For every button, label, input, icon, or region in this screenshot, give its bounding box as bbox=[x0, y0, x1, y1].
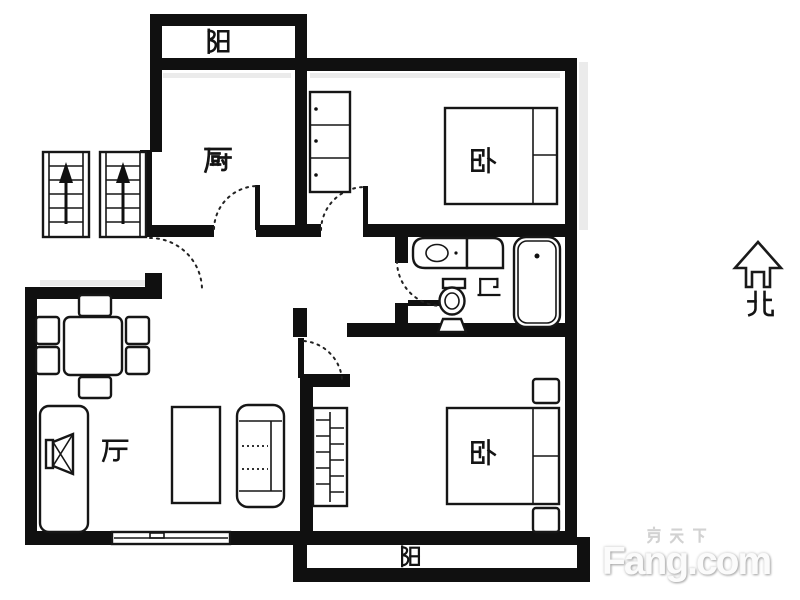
wall-balcony-top bbox=[150, 14, 307, 26]
kitchen-door-leaf bbox=[255, 185, 260, 230]
bedroom1-door-swing-icon bbox=[321, 187, 364, 230]
wall-top-main bbox=[295, 58, 577, 71]
wall-bedroom1-bottom-foot bbox=[295, 224, 321, 237]
staircase-up-icon bbox=[100, 152, 146, 237]
dining-table-icon bbox=[64, 317, 122, 375]
wardrobe-icon bbox=[313, 408, 347, 506]
wall-hall-stub bbox=[293, 308, 307, 337]
double-bed-icon bbox=[445, 108, 557, 204]
wall-bottom-right bbox=[230, 531, 577, 545]
label-bathroom-glyph bbox=[479, 279, 500, 295]
storage-cabinet-icon bbox=[310, 92, 350, 192]
label-balcony-bottom-glyph bbox=[402, 546, 419, 566]
bedroom1-door-leaf bbox=[363, 186, 368, 229]
label-kitchen-glyph bbox=[206, 149, 231, 172]
wall-balcony-kitchen-divider bbox=[150, 58, 307, 70]
bedroom2-door-leaf bbox=[298, 338, 304, 378]
floorplan-canvas: 阳 厨 卧 卫 厅 卧 阳 北 房天下 Fang.com bbox=[0, 0, 800, 600]
wall-kitchen-right bbox=[295, 14, 307, 237]
watermark-latin: Fang.com bbox=[602, 540, 770, 584]
bedroom2-door-swing-icon bbox=[304, 341, 342, 379]
label-north-glyph bbox=[748, 292, 772, 315]
wall-balcony2-bottom bbox=[293, 568, 590, 582]
label-living-room-glyph bbox=[103, 441, 127, 461]
staircase-up-icon bbox=[43, 152, 89, 237]
double-bed-icon bbox=[447, 408, 559, 504]
kitchen-door-swing-icon bbox=[214, 186, 257, 229]
window-icon bbox=[112, 532, 230, 544]
wall-kitchen-bottom-a bbox=[140, 225, 214, 237]
toilet-icon bbox=[438, 279, 466, 332]
bathtub-icon bbox=[514, 237, 560, 327]
wall-bedroom1-bottom-main bbox=[363, 224, 565, 237]
wall-kitchen-left-upper bbox=[150, 14, 162, 152]
wall-right-main bbox=[565, 58, 577, 545]
label-balcony-top-glyph bbox=[209, 30, 228, 53]
north-arrow-icon bbox=[735, 242, 781, 287]
tv-icon bbox=[46, 434, 73, 474]
coffee-table-icon bbox=[172, 407, 220, 503]
floorplan-drawing bbox=[0, 0, 800, 600]
sofa-icon bbox=[237, 405, 284, 507]
nightstand-icon bbox=[533, 508, 559, 532]
wall-balcony2-right bbox=[577, 537, 590, 582]
nightstand-icon bbox=[533, 379, 559, 403]
wall-entry-step bbox=[145, 273, 162, 299]
wall-bathroom-left-top bbox=[395, 237, 408, 263]
washing-machine-icon bbox=[467, 238, 503, 268]
wall-bedroom2-left bbox=[300, 374, 313, 531]
fang-watermark: 房天下 Fang.com bbox=[598, 520, 798, 598]
sink-vanity-icon bbox=[413, 238, 467, 268]
